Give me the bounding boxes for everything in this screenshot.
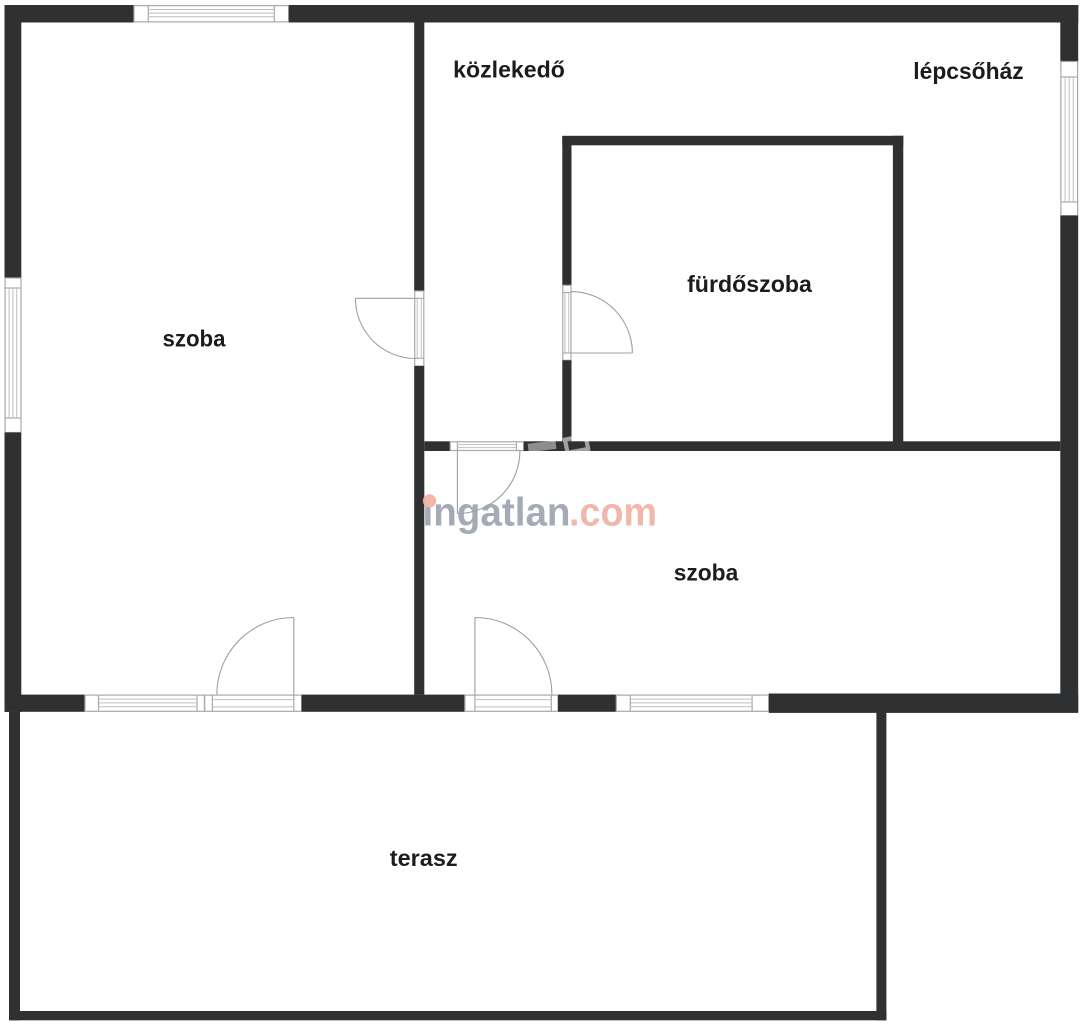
svg-text:szoba: szoba [674, 560, 739, 586]
svg-text:terasz: terasz [390, 845, 458, 871]
svg-text:lépcsőház: lépcsőház [913, 58, 1023, 84]
svg-text:fürdőszoba: fürdőszoba [687, 271, 813, 297]
svg-text:ingatlan: ingatlan [423, 490, 571, 534]
svg-text:.com: .com [569, 490, 657, 534]
svg-text:közlekedő: közlekedő [453, 57, 565, 83]
svg-text:szoba: szoba [162, 326, 226, 352]
